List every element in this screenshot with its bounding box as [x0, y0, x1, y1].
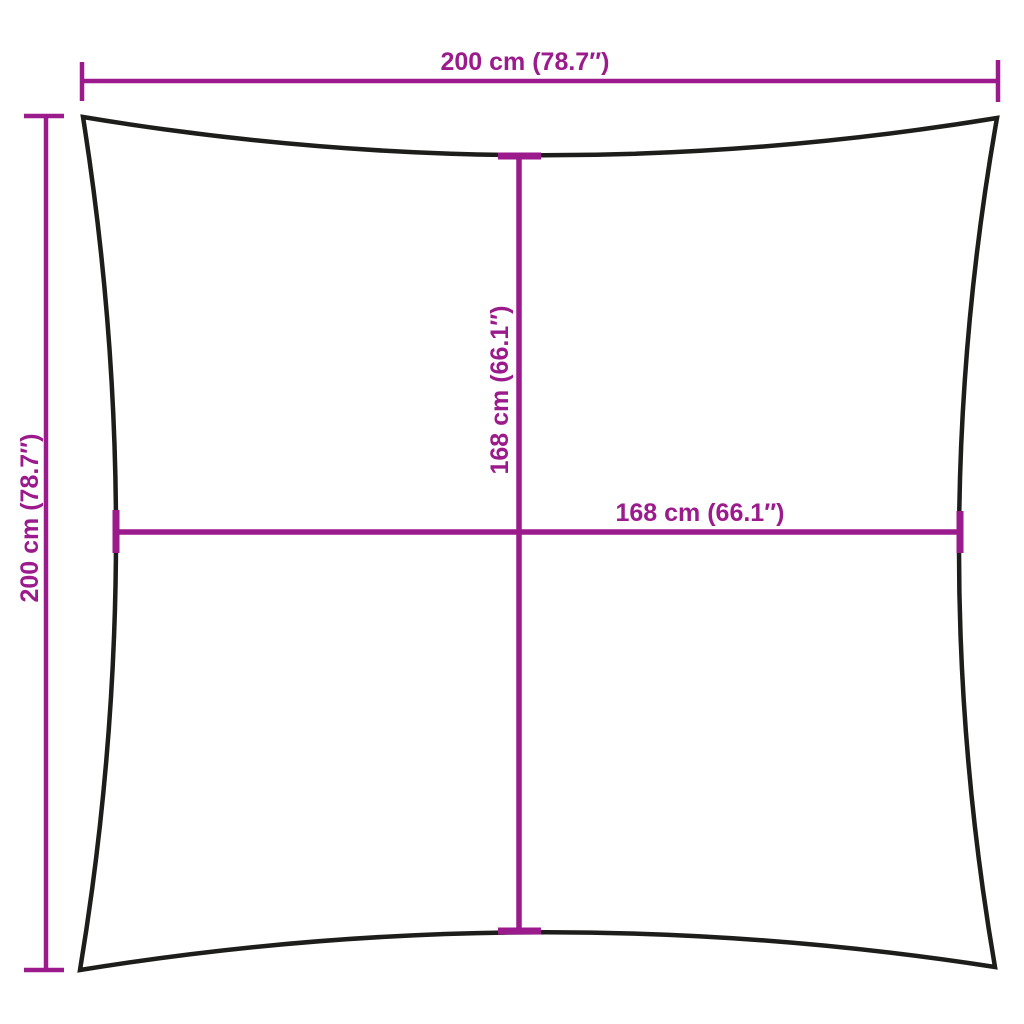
inner-width-label: 168 cm (66.1″) — [615, 499, 784, 527]
dimension-inner-width: 168 cm (66.1″) — [116, 499, 960, 553]
dimension-inner-height: 168 cm (66.1″) — [486, 155, 541, 933]
sail-outline — [80, 117, 997, 970]
diagram-canvas: 200 cm (78.7″) 200 cm (78.7″) 168 cm (66… — [0, 0, 1024, 1024]
dimension-top-width: 200 cm (78.7″) — [82, 48, 998, 102]
inner-height-label: 168 cm (66.1″) — [486, 305, 514, 474]
dimension-diagram: 200 cm (78.7″) 200 cm (78.7″) 168 cm (66… — [0, 0, 1024, 1024]
top-width-label: 200 cm (78.7″) — [440, 48, 609, 76]
sail-shape — [80, 117, 997, 970]
dimension-left-height: 200 cm (78.7″) — [16, 116, 64, 970]
left-height-label: 200 cm (78.7″) — [16, 433, 44, 602]
